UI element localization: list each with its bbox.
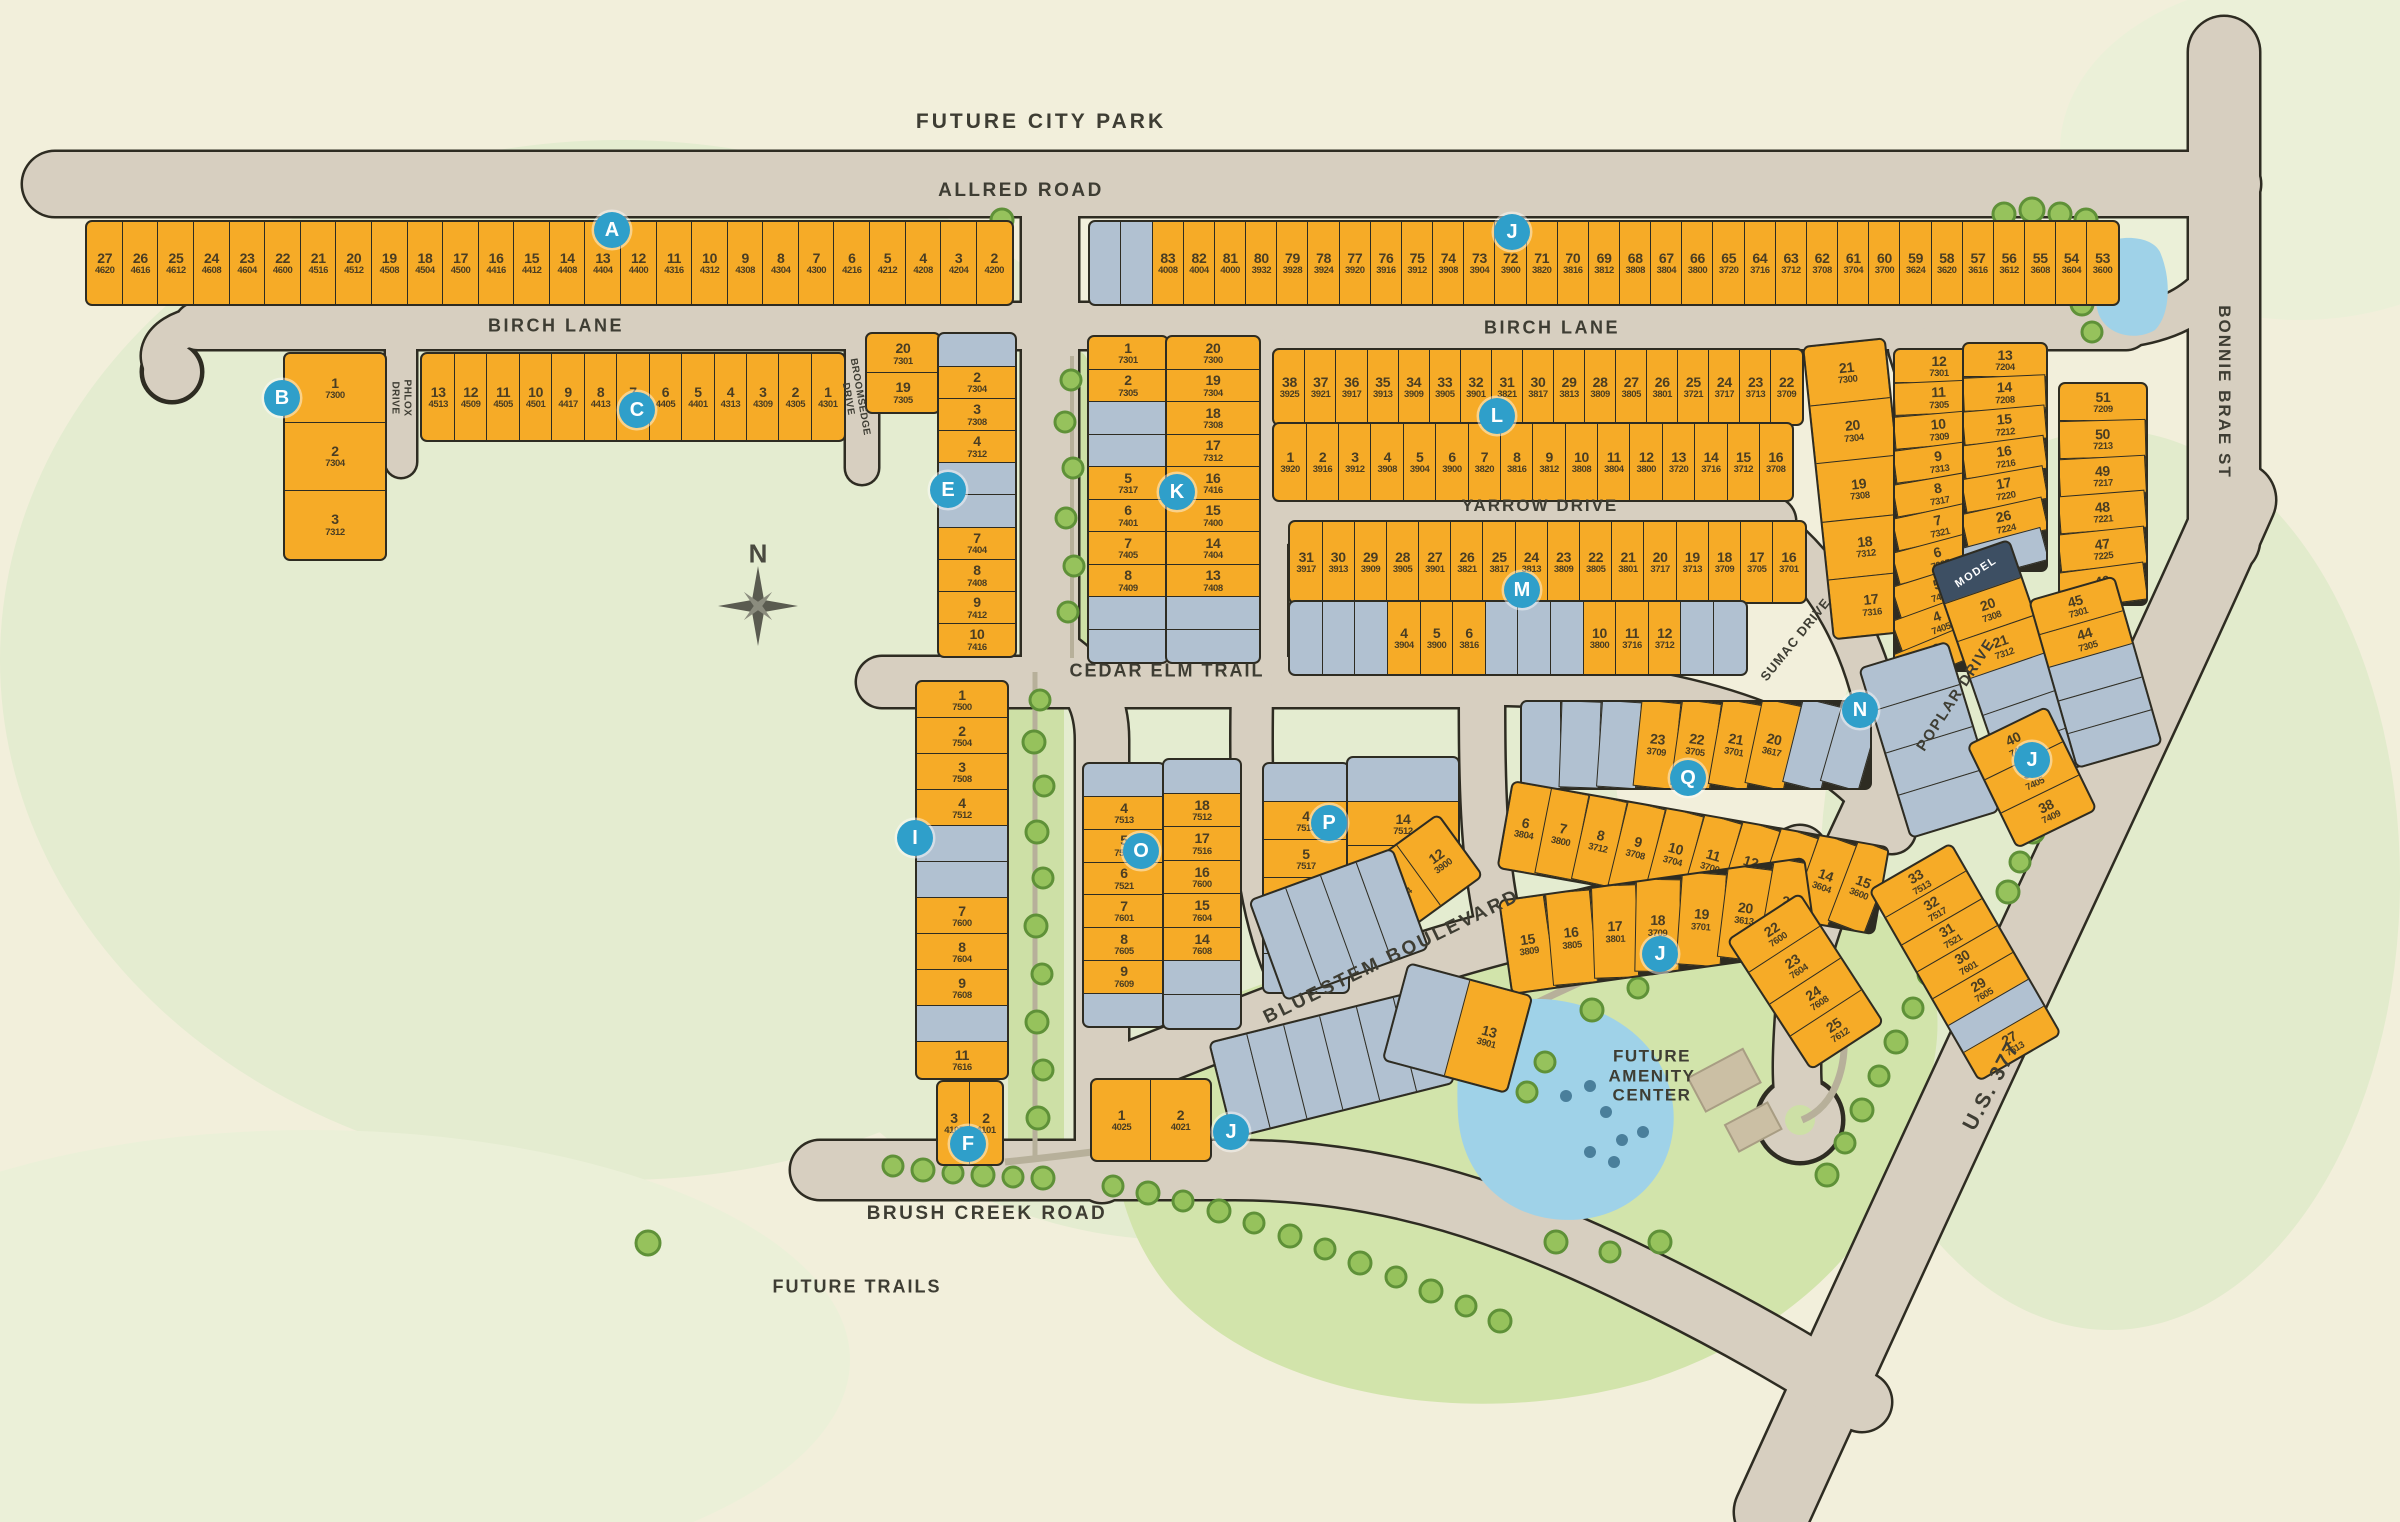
map-marker-l[interactable]: L xyxy=(1479,398,1515,434)
map-marker-q[interactable]: Q xyxy=(1670,760,1706,796)
map-marker-j[interactable]: J xyxy=(1642,936,1678,972)
map-marker-a[interactable]: A xyxy=(594,212,630,248)
map-marker-j[interactable]: J xyxy=(2014,742,2050,778)
map-marker-f[interactable]: F xyxy=(950,1126,986,1162)
map-marker-b[interactable]: B xyxy=(264,380,300,416)
map-marker-c[interactable]: C xyxy=(619,392,655,428)
community-site-map: 2746202646162546122446082346042246002145… xyxy=(0,0,2400,1522)
map-marker-p[interactable]: P xyxy=(1311,805,1347,841)
map-marker-j[interactable]: J xyxy=(1494,214,1530,250)
map-marker-j[interactable]: J xyxy=(1213,1114,1249,1150)
map-marker-m[interactable]: M xyxy=(1504,572,1540,608)
map-markers: ABCEFIJJJJKLMNOPQ xyxy=(0,0,2400,1522)
map-marker-o[interactable]: O xyxy=(1123,833,1159,869)
map-marker-k[interactable]: K xyxy=(1159,474,1195,510)
map-marker-e[interactable]: E xyxy=(930,472,966,508)
map-marker-i[interactable]: I xyxy=(897,820,933,856)
map-marker-n[interactable]: N xyxy=(1842,692,1878,728)
